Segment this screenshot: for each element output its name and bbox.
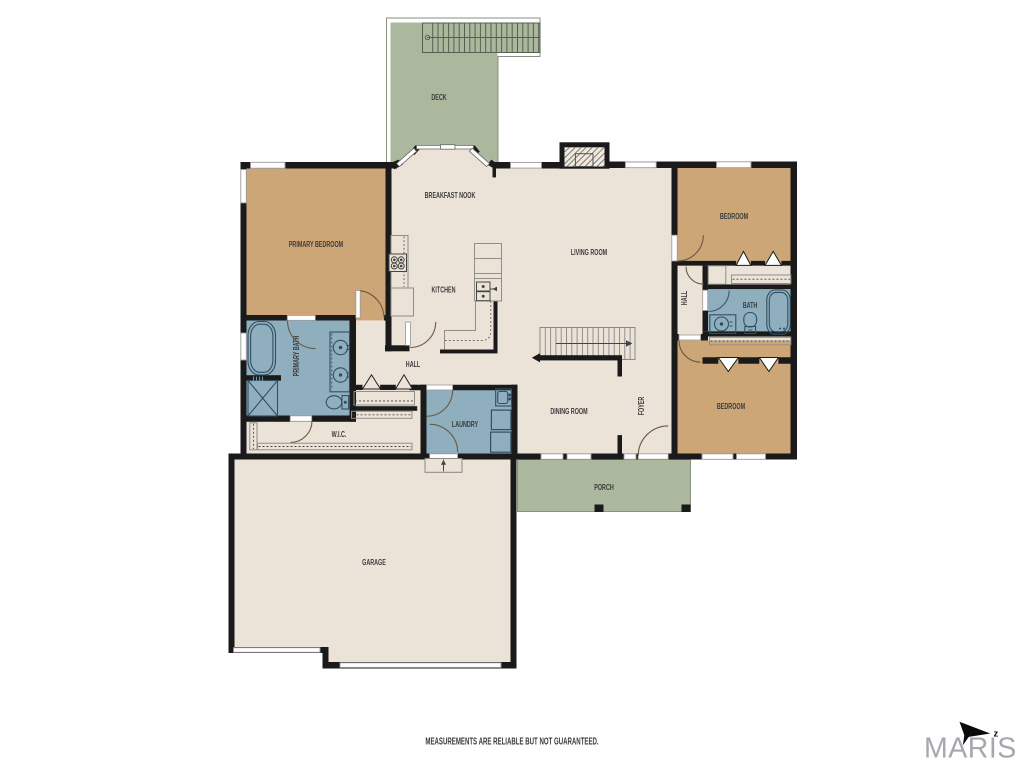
- svg-text:BATH: BATH: [743, 302, 758, 310]
- svg-text:GARAGE: GARAGE: [362, 559, 386, 567]
- svg-text:KITCHEN: KITCHEN: [431, 287, 455, 295]
- svg-text:z: z: [994, 729, 999, 740]
- svg-text:HALL: HALL: [406, 361, 421, 369]
- svg-text:BEDROOM: BEDROOM: [717, 403, 745, 411]
- svg-text:W.I.C.: W.I.C.: [332, 431, 347, 439]
- svg-text:DECK: DECK: [431, 94, 446, 102]
- svg-text:HALL: HALL: [681, 290, 689, 305]
- svg-text:PRIMARY BEDROOM: PRIMARY BEDROOM: [289, 241, 344, 249]
- svg-text:LAUNDRY: LAUNDRY: [452, 421, 479, 429]
- svg-text:BREAKFAST NOOK: BREAKFAST NOOK: [425, 192, 476, 200]
- svg-text:PORCH: PORCH: [594, 484, 614, 492]
- svg-text:LIVING ROOM: LIVING ROOM: [571, 249, 608, 257]
- svg-text:MARIS: MARIS: [924, 733, 1017, 765]
- svg-text:FOYER: FOYER: [638, 397, 646, 416]
- svg-text:PRIMARY BATH: PRIMARY BATH: [293, 336, 301, 377]
- svg-text:MEASUREMENTS ARE RELIABLE BUT: MEASUREMENTS ARE RELIABLE BUT NOT GUARAN…: [425, 735, 598, 747]
- svg-text:BEDROOM: BEDROOM: [720, 213, 748, 221]
- svg-text:DINING ROOM: DINING ROOM: [550, 408, 587, 416]
